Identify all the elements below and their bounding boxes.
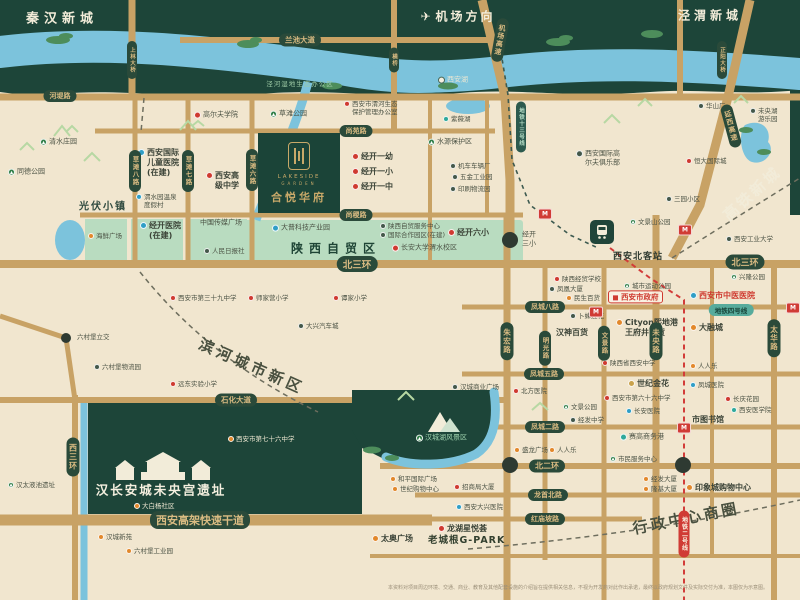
poi-text: 隆基大厦 bbox=[651, 485, 677, 493]
poi-text: 长安医院 bbox=[634, 407, 660, 415]
dark-poi-icon bbox=[380, 223, 386, 229]
disclaimer-text: 本资料对项目周边环境、交通、商业、教育及其他配套设施的介绍旨在提供相关信息，不视… bbox=[388, 584, 790, 591]
poi-label: 五金工业园 bbox=[452, 173, 493, 181]
orange-poi-icon bbox=[690, 363, 696, 369]
poi-text: 大白杨社区 bbox=[142, 502, 175, 510]
poi-label: 经发中学 bbox=[570, 416, 604, 424]
poi-label: 六村堡立交 bbox=[77, 333, 110, 341]
poi-text: 高尔夫学院 bbox=[203, 111, 238, 120]
poi-label: 经开一小 bbox=[352, 167, 393, 177]
poi-label: 陕西自贸服务中心 bbox=[380, 222, 440, 230]
road-pill: 尚苑路 bbox=[340, 125, 373, 137]
red-poi-icon bbox=[725, 396, 731, 402]
east-greenbelt bbox=[790, 90, 800, 215]
orange-poi-icon bbox=[643, 486, 649, 492]
poi-text: 经开一幼 bbox=[361, 152, 393, 162]
poi-text: 师家营小学 bbox=[256, 294, 289, 302]
poi-text: 印刷物流园 bbox=[458, 185, 491, 193]
red-poi-icon bbox=[352, 183, 359, 190]
road-pill: 龙首北路 bbox=[528, 489, 568, 501]
red-poi-icon bbox=[448, 229, 455, 236]
poi-label: 西安湖 bbox=[438, 76, 468, 85]
poi-label: 龙湖星悦荟 bbox=[438, 524, 487, 534]
bridge-pill: 上林大桥 bbox=[127, 41, 137, 79]
poi-label: 西安工业大学 bbox=[726, 235, 773, 243]
poi-label: 西安市中医医院 bbox=[690, 291, 755, 301]
poi-label: 人人乐 bbox=[549, 446, 577, 454]
poi-text: 机车车辆厂 bbox=[458, 162, 491, 170]
poi-text: 远东实验小学 bbox=[178, 380, 217, 388]
poi-label: 机车车辆厂 bbox=[450, 162, 491, 170]
poi-text: 恒大国际城 bbox=[694, 157, 727, 165]
poi-label: ▲水源保护区 bbox=[428, 138, 472, 147]
poi-text: 赛高商务港 bbox=[629, 433, 664, 442]
poi-text: 汉神百货 bbox=[556, 328, 588, 338]
orange-poi-icon bbox=[643, 476, 649, 482]
red-poi-icon bbox=[206, 172, 213, 179]
airport-direction-label: 机场方向 bbox=[436, 10, 496, 24]
poi-label: 世纪金花 bbox=[628, 379, 669, 389]
red-poi-icon bbox=[602, 360, 608, 366]
poi-text: 西安国际儿童医院(在建) bbox=[147, 148, 179, 178]
lantern-emblem-icon bbox=[288, 142, 310, 170]
poi-label: 紫薇湖 bbox=[443, 115, 471, 123]
road-pill: 河堤路 bbox=[44, 90, 77, 102]
metro-line-pill: 地铁二号线 bbox=[679, 511, 690, 558]
poi-label: 经开三小 bbox=[522, 230, 536, 248]
poi-text: 经开三小 bbox=[522, 230, 536, 248]
blue-poi-icon bbox=[456, 504, 462, 510]
poi-text: 西安湖 bbox=[447, 76, 468, 85]
poi-label: 经发大厦 bbox=[643, 475, 677, 483]
poi-label: 经开六小 bbox=[448, 228, 489, 238]
dark-poi-icon bbox=[666, 196, 672, 202]
poi-text: 陕西省西安中学 bbox=[610, 359, 656, 367]
poi-label: 西安国际高尔夫俱乐部 bbox=[576, 149, 620, 167]
poi-text: 草滩公园 bbox=[279, 110, 307, 119]
dark-poi-icon bbox=[698, 103, 704, 109]
red-poi-icon bbox=[438, 525, 445, 532]
bridge-pill: 正阳大桥 bbox=[717, 41, 727, 79]
district-jingweixincheng: 泾渭新城 bbox=[678, 7, 742, 24]
red-poi-icon bbox=[170, 381, 176, 387]
teal-poi-icon bbox=[620, 434, 627, 441]
poi-label: ▲汉太液池遗址 bbox=[8, 481, 55, 489]
poi-text: 人人乐 bbox=[557, 446, 577, 454]
road-pill-vertical: 草滩八路 bbox=[129, 150, 141, 192]
poi-text: 水源保护区 bbox=[437, 138, 472, 147]
pond-west bbox=[55, 220, 85, 260]
poi-text: 世纪购物中心 bbox=[400, 485, 439, 493]
road-pill: 北二环 bbox=[529, 460, 565, 473]
orange-poi-icon bbox=[549, 447, 555, 453]
poi-label: 三园小区 bbox=[666, 195, 700, 203]
road-pill-vertical: 草滩六路 bbox=[246, 149, 258, 191]
red-poi-icon bbox=[554, 276, 560, 282]
metro-station-icon: M bbox=[538, 209, 552, 220]
poi-label: ▲汉城湖风景区 bbox=[416, 434, 467, 443]
poi-label: 恒大国际城 bbox=[686, 157, 727, 165]
poi-text: 西安工业大学 bbox=[734, 235, 773, 243]
poi-label: 印象城购物中心 bbox=[686, 483, 751, 493]
red-poi-icon bbox=[248, 295, 254, 301]
poi-label: 未央湖游乐园 bbox=[750, 107, 778, 123]
blue-poi-icon bbox=[272, 225, 279, 232]
poi-text: 清水庄园 bbox=[49, 138, 77, 147]
poi-text: 西安市第三十九中学 bbox=[178, 294, 237, 302]
poi-text: 凤城医院 bbox=[698, 381, 724, 389]
poi-label: 赛高商务港 bbox=[620, 433, 664, 442]
green-poi-icon: ▲ bbox=[563, 404, 569, 410]
poi-label: 西安高级中学 bbox=[206, 171, 239, 191]
poi-text: 西安国际高尔夫俱乐部 bbox=[585, 149, 620, 167]
logo-en-line1: LAKESIDE bbox=[278, 174, 321, 180]
project-logo: LAKESIDE GARDEN 合悦华府 bbox=[258, 133, 340, 213]
poi-text: 长安大学渭水校区 bbox=[401, 244, 457, 253]
poi-text: 经发大厦 bbox=[651, 475, 677, 483]
poi-text: 汉城湖风景区 bbox=[425, 434, 467, 443]
poi-label: 西安市第七十六中学 bbox=[228, 435, 295, 443]
road-pill-vertical: 文景路 bbox=[598, 326, 610, 361]
road-pill-vertical: 未央路 bbox=[650, 322, 663, 360]
poi-text: 经开六小 bbox=[457, 228, 489, 238]
orange-poi-icon bbox=[616, 319, 623, 326]
metro-station-icon: M bbox=[678, 225, 692, 236]
road-pill: 石化大道 bbox=[215, 394, 257, 407]
poi-text: 西安市第六十六中学 bbox=[612, 394, 671, 402]
district-airport-direction: ✈机场方向 bbox=[420, 8, 495, 25]
poi-text: 三园小区 bbox=[674, 195, 700, 203]
red-poi-icon bbox=[352, 153, 359, 160]
poi-label: 太奥广场 bbox=[372, 534, 413, 544]
government-flag-icon bbox=[612, 294, 619, 301]
poi-label: 招商局大厦 bbox=[454, 483, 495, 491]
poi-label: 经开一中 bbox=[352, 182, 393, 192]
orange-poi-icon bbox=[134, 503, 140, 509]
green-poi-icon: ▲ bbox=[624, 283, 630, 289]
road-pill: 凤城八路 bbox=[525, 301, 565, 313]
poi-label: 师家营小学 bbox=[248, 294, 289, 302]
metro-station-icon: M bbox=[589, 307, 603, 318]
green-poi-icon: ▲ bbox=[630, 219, 636, 225]
poi-label: 陕西省西安中学 bbox=[602, 359, 656, 367]
train-icon bbox=[590, 220, 614, 244]
red-poi-icon bbox=[454, 484, 460, 490]
poi-text: 龙湖星悦荟 bbox=[447, 524, 487, 534]
poi-text: 和平国际广场 bbox=[398, 475, 437, 483]
red-poi-icon bbox=[333, 295, 339, 301]
poi-text: 大普科技产业园 bbox=[281, 224, 330, 233]
poi-text: 世纪金花 bbox=[637, 379, 669, 389]
blue-poi-icon bbox=[140, 222, 147, 229]
poi-text: 盛龙广场 bbox=[522, 446, 548, 454]
poi-label: 西安大兴医院 bbox=[456, 503, 503, 511]
poi-text: 海鲜广场 bbox=[96, 232, 122, 240]
road-pill-vertical: 朱宏路 bbox=[501, 322, 514, 360]
road-pill: 北三环 bbox=[337, 256, 378, 272]
poi-text: 印象城购物中心 bbox=[695, 483, 751, 493]
green-poi-icon: ▲ bbox=[8, 169, 15, 176]
poi-label: 谭家小学 bbox=[333, 294, 367, 302]
poi-label: 西安市渭河生态保护管理办公室 bbox=[344, 100, 398, 116]
green-poi-icon: ▲ bbox=[428, 139, 435, 146]
poi-text: 西安市第七十六中学 bbox=[236, 435, 295, 443]
dark-poi-icon bbox=[450, 186, 456, 192]
orange-poi-icon bbox=[88, 233, 94, 239]
poi-label: ▲市民服务中心 bbox=[610, 455, 657, 463]
district-free-trade-zone: 陕西自贸区 bbox=[291, 240, 381, 257]
poi-label: 大普科技产业园 bbox=[272, 224, 330, 233]
poi-text: 经开一中 bbox=[361, 182, 393, 192]
poi-text: 凤凰大厦 bbox=[557, 285, 583, 293]
orange-poi-icon bbox=[98, 534, 104, 540]
road-pill-vertical: 西三环 bbox=[67, 438, 80, 477]
teal-poi-icon bbox=[443, 116, 449, 122]
poi-label: 西安市第六十六中学 bbox=[604, 394, 671, 402]
red-poi-icon bbox=[392, 245, 399, 252]
poi-text: 五金工业园 bbox=[460, 173, 493, 181]
poi-text: 未央湖游乐园 bbox=[758, 107, 778, 123]
poi-text: 六村堡立交 bbox=[77, 333, 110, 341]
poi-text: 经发中学 bbox=[578, 416, 604, 424]
red-poi-icon bbox=[170, 295, 176, 301]
orange-poi-icon bbox=[392, 486, 398, 492]
road-pill-vertical: 明光路 bbox=[539, 331, 551, 366]
green-poi-icon: ▲ bbox=[731, 274, 737, 280]
poi-label: 汉城新苑 bbox=[98, 533, 132, 541]
district-qinhanxincheng: 秦汉新城 bbox=[26, 8, 98, 27]
green-poi-icon: ▲ bbox=[416, 435, 423, 442]
poi-label: 盛龙广场 bbox=[514, 446, 548, 454]
poi-label: 长安医院 bbox=[626, 407, 660, 415]
district-guangfu-town: 光伏小镇 bbox=[79, 198, 127, 213]
road-pill-vertical: 太华路 bbox=[768, 319, 781, 357]
poi-label: 海鲜广场 bbox=[88, 232, 122, 240]
poi-label: 汉神百货 bbox=[556, 328, 588, 338]
metro-line-pill: 地铁四号线 bbox=[709, 304, 754, 316]
goldc-poi-icon bbox=[628, 380, 635, 387]
road-pill: 西安高架快速干道 bbox=[150, 511, 250, 529]
poi-text: 陕西自贸服务中心 bbox=[388, 222, 440, 230]
plane-icon: ✈ bbox=[420, 10, 430, 24]
road-pill: 尚稷路 bbox=[340, 209, 373, 221]
road-pill: 红庙坡路 bbox=[525, 513, 565, 525]
poi-text: 汉城新苑 bbox=[106, 533, 132, 541]
road-pill: 凤城五路 bbox=[524, 368, 564, 380]
poi-text: 汉城商业广场 bbox=[460, 383, 499, 391]
poi-label: ▲同德公园 bbox=[8, 168, 45, 177]
poi-text: 文景山公园 bbox=[638, 218, 671, 226]
poi-text: 北方医院 bbox=[521, 387, 547, 395]
poi-text: 市图书馆 bbox=[692, 415, 724, 425]
blue-poi-icon bbox=[690, 382, 696, 388]
poi-label: 经开一幼 bbox=[352, 152, 393, 162]
orange-poi-icon bbox=[566, 295, 572, 301]
poi-label: 渭水园温泉度假村 bbox=[136, 193, 177, 209]
red-poi-icon bbox=[686, 158, 692, 164]
poi-text: 人民日报社 bbox=[212, 247, 245, 255]
poi-text: 西安市中医医院 bbox=[699, 291, 755, 301]
poi-label: ▲清水庄园 bbox=[40, 138, 77, 147]
poi-label: 印刷物流园 bbox=[450, 185, 491, 193]
white-poi-icon bbox=[438, 77, 445, 84]
poi-text: 西安市政府 bbox=[621, 292, 659, 301]
poi-text: 谭家小学 bbox=[341, 294, 367, 302]
poi-text: 招商局大厦 bbox=[462, 483, 495, 491]
blue-poi-icon bbox=[136, 194, 142, 200]
orange-poi-icon bbox=[126, 548, 132, 554]
road-pill-vertical: 草滩七路 bbox=[182, 150, 194, 192]
road-pill: 北三环 bbox=[725, 255, 764, 270]
poi-label: 北方医院 bbox=[513, 387, 547, 395]
dark-poi-icon bbox=[452, 384, 458, 390]
poi-label: 六村堡工业园 bbox=[126, 547, 173, 555]
poi-text: 同德公园 bbox=[17, 168, 45, 177]
poi-label: 长安大学渭水校区 bbox=[392, 244, 457, 253]
poi-text: 西安市渭河生态保护管理办公室 bbox=[352, 100, 398, 116]
poi-text: 经开一小 bbox=[361, 167, 393, 177]
poi-label: 国际合作园区(在建) bbox=[380, 231, 445, 239]
poi-text: 长庆花园 bbox=[733, 395, 759, 403]
dark-poi-icon bbox=[298, 323, 304, 329]
red-poi-icon bbox=[513, 388, 519, 394]
red-poi-icon bbox=[194, 112, 201, 119]
green-poi-icon: ▲ bbox=[270, 111, 277, 118]
poi-label: 凤城医院 bbox=[690, 381, 724, 389]
orange-poi-icon bbox=[514, 447, 520, 453]
poi-label: 和平国际广场 bbox=[390, 475, 437, 483]
wetland-office-label: 泾河湿地生态办公区 bbox=[266, 78, 334, 88]
poi-text: 市民服务中心 bbox=[618, 455, 657, 463]
poi-text: 城市运动公园 bbox=[632, 282, 671, 290]
poi-label: 人民日报社 bbox=[204, 247, 245, 255]
poi-label: 市图书馆 bbox=[692, 415, 724, 425]
poi-text: 人人乐 bbox=[698, 362, 718, 370]
dark-poi-icon bbox=[204, 248, 210, 254]
orange-poi-icon bbox=[228, 436, 234, 442]
poi-label: 六村堡物流园 bbox=[94, 363, 141, 371]
dark-poi-icon bbox=[750, 108, 756, 114]
poi-label: 隆基大厦 bbox=[643, 485, 677, 493]
poi-label: ▲文景山公园 bbox=[630, 218, 671, 226]
orange-poi-icon bbox=[372, 535, 379, 542]
poi-label: ▲草滩公园 bbox=[270, 110, 307, 119]
bridge-pill: 横桥 bbox=[389, 48, 399, 73]
teal-poi-icon bbox=[731, 407, 737, 413]
poi-text: 西安大兴医院 bbox=[464, 503, 503, 511]
poi-label: 西安国际儿童医院(在建) bbox=[138, 148, 179, 178]
poi-text: 兴隆公园 bbox=[739, 273, 765, 281]
road-pill: 兰池大道 bbox=[279, 34, 321, 47]
dark-poi-icon bbox=[94, 364, 100, 370]
green-poi-icon: ▲ bbox=[610, 456, 616, 462]
red-poi-icon bbox=[344, 101, 350, 107]
poi-text: 渭水园温泉度假村 bbox=[144, 193, 177, 209]
poi-text: 大融城 bbox=[699, 323, 723, 333]
poi-label: 汉城商业广场 bbox=[452, 383, 499, 391]
orange-poi-icon bbox=[690, 324, 697, 331]
poi-text: 经开医院(在建) bbox=[149, 221, 181, 241]
poi-label: ▲文景公园 bbox=[563, 403, 597, 411]
red-poi-icon bbox=[352, 168, 359, 175]
poi-text: 国际合作园区(在建) bbox=[388, 231, 445, 239]
poi-label: 西安市第三十九中学 bbox=[170, 294, 237, 302]
north-station-label: 西安北客站 bbox=[613, 249, 663, 262]
poi-text: 汉太液池遗址 bbox=[16, 481, 55, 489]
ruins-title: 汉长安城未央宫遗址 bbox=[96, 480, 227, 499]
poi-label: 大兴汽车城 bbox=[298, 322, 339, 330]
blue-poi-icon bbox=[626, 408, 632, 414]
logo-cn-name: 合悦华府 bbox=[271, 189, 327, 205]
dark-poi-icon bbox=[450, 163, 456, 169]
poi-label: 大融城 bbox=[690, 323, 723, 333]
dark-poi-icon bbox=[570, 417, 576, 423]
poi-label: 人人乐 bbox=[690, 362, 718, 370]
poi-text: 西安高级中学 bbox=[215, 171, 239, 191]
dark-poi-icon bbox=[549, 286, 555, 292]
metro-station-icon: M bbox=[786, 303, 800, 314]
poi-label: 西安医学院 bbox=[731, 406, 772, 414]
poi-label: 世纪购物中心 bbox=[392, 485, 439, 493]
poi-label: ▲兴隆公园 bbox=[731, 273, 765, 281]
poi-text: 老城根G-PARK bbox=[428, 535, 505, 547]
orange-poi-icon bbox=[390, 476, 396, 482]
metro-station-icon: M bbox=[677, 423, 691, 434]
dark-poi-icon bbox=[452, 174, 458, 180]
poi-label: 远东实验小学 bbox=[170, 380, 217, 388]
poi-text: 六村堡工业园 bbox=[134, 547, 173, 555]
poi-label: 中国传媒广场 bbox=[200, 219, 242, 228]
poi-label: 民生百货 bbox=[566, 294, 600, 302]
poi-label: 西安市政府 bbox=[608, 290, 663, 303]
poi-text: 民生百货 bbox=[574, 294, 600, 302]
green-poi-icon: ▲ bbox=[8, 482, 14, 488]
dark-poi-icon bbox=[576, 150, 583, 157]
metro-line-pill: 地铁十三号线 bbox=[516, 102, 526, 153]
poi-text: 陕西经贸学校 bbox=[562, 275, 601, 283]
poi-text: 中国传媒广场 bbox=[200, 219, 242, 228]
orange-poi-icon bbox=[686, 484, 693, 491]
green-poi-icon: ▲ bbox=[40, 139, 47, 146]
poi-text: 紫薇湖 bbox=[451, 115, 471, 123]
blue-poi-icon bbox=[690, 292, 697, 299]
logo-en-line2: GARDEN bbox=[281, 181, 316, 186]
poi-label: 老城根G-PARK bbox=[428, 535, 505, 547]
poi-label: 凤凰大厦 bbox=[549, 285, 583, 293]
map-canvas: 秦汉新城 泾渭新城 ✈机场方向 高铁新城 滨河城市新区 行政中心商圈 陕西自贸区… bbox=[0, 0, 800, 600]
poi-label: 大白杨社区 bbox=[134, 502, 175, 510]
poi-text: 西安医学院 bbox=[739, 406, 772, 414]
poi-text: 六村堡物流园 bbox=[102, 363, 141, 371]
poi-label: 经开医院(在建) bbox=[140, 221, 181, 241]
poi-text: 文景公园 bbox=[571, 403, 597, 411]
poi-text: 大兴汽车城 bbox=[306, 322, 339, 330]
dark-poi-icon bbox=[380, 232, 386, 238]
poi-label: 长庆花园 bbox=[725, 395, 759, 403]
poi-label: 高尔夫学院 bbox=[194, 111, 238, 120]
dark-poi-icon bbox=[726, 236, 732, 242]
poi-label: Cityon熙地港王府井百货 bbox=[616, 318, 678, 338]
dark-poi-icon bbox=[570, 313, 576, 319]
poi-label: ▲城市运动公园 bbox=[624, 282, 671, 290]
road-pill: 凤城二路 bbox=[525, 421, 565, 433]
poi-text: 太奥广场 bbox=[381, 534, 413, 544]
poi-label: 陕西经贸学校 bbox=[554, 275, 601, 283]
red-poi-icon bbox=[604, 395, 610, 401]
